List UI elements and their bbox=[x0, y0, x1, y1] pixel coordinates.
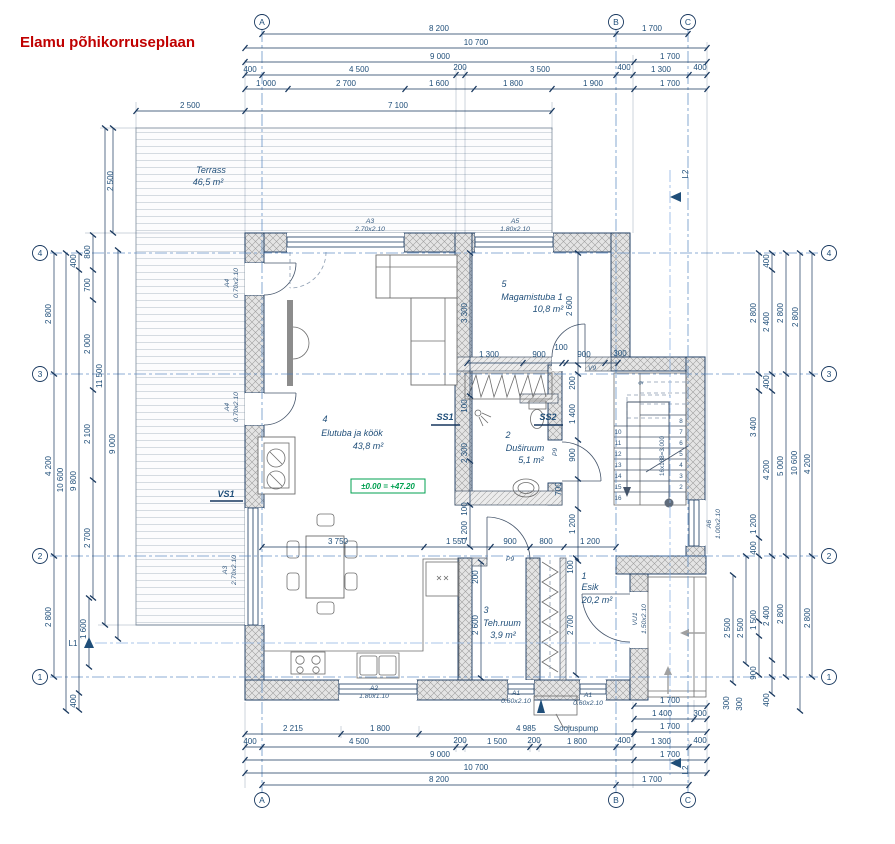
opening-label: 1.80x2.10 bbox=[500, 226, 530, 233]
dim-label: 800 bbox=[539, 537, 553, 546]
dim-label: 200 bbox=[527, 736, 541, 745]
stair-number: 13 bbox=[614, 462, 622, 469]
window-a3-left bbox=[245, 508, 264, 625]
dim-label: 400 bbox=[243, 737, 257, 746]
grid-label-2-left: 2 bbox=[38, 551, 43, 561]
level-mark-text: ±0.00 = +47.20 bbox=[361, 482, 415, 491]
dim-label: 1 500 bbox=[749, 609, 758, 630]
dim-label: 300 bbox=[735, 697, 744, 711]
opening-label: 2.70x2.10 bbox=[231, 555, 238, 586]
dim-label: 300 bbox=[613, 349, 627, 358]
heat-pump-label: Soojuspump bbox=[554, 724, 599, 733]
opening-label: A1 bbox=[511, 690, 521, 697]
dim-label: 800 bbox=[83, 245, 92, 259]
dim-label: 1 800 bbox=[503, 79, 524, 88]
stair-number: 10 bbox=[614, 429, 622, 436]
dim-label: 9 800 bbox=[69, 470, 78, 491]
dim-label: 2 500 bbox=[106, 170, 115, 191]
grid-label-b-bottom: B bbox=[613, 795, 619, 805]
section-mark-l2-bottom: L2 bbox=[681, 765, 690, 774]
dim-label: 1 800 bbox=[567, 737, 588, 746]
l2-top-marker-icon bbox=[670, 192, 681, 202]
dim-label: 1 900 bbox=[583, 79, 604, 88]
dim-label: 4 985 bbox=[516, 724, 537, 733]
dim-label: 400 bbox=[749, 541, 758, 555]
dim-label: 3 300 bbox=[460, 302, 469, 323]
grid-label-4-left: 4 bbox=[38, 248, 43, 258]
dim-label: 9 000 bbox=[430, 52, 451, 61]
room-label-esik: Esik bbox=[581, 582, 599, 592]
dim-label: 400 bbox=[243, 65, 257, 74]
dim-label: 4 200 bbox=[803, 453, 812, 474]
dim-label: 3 750 bbox=[328, 537, 349, 546]
opening-label: A5 bbox=[510, 218, 520, 225]
stair-formula: 16x188=3.000 bbox=[659, 435, 666, 476]
dim-label: 10 700 bbox=[464, 763, 489, 772]
dim-label: 1 200 bbox=[568, 513, 577, 534]
stair-number: 6 bbox=[679, 440, 683, 447]
dim-label: 10 700 bbox=[464, 38, 489, 47]
dim-label: 2 800 bbox=[776, 302, 785, 323]
dim-label: 400 bbox=[762, 254, 771, 268]
floorplan-drawing: Elamu põhikorruseplaan 8 200 1 700 10 70… bbox=[0, 0, 895, 844]
stair-number: 7 bbox=[679, 429, 683, 436]
stair-number: 14 bbox=[614, 473, 622, 480]
dim-label: 1 200 bbox=[580, 537, 601, 546]
dim-label: 400 bbox=[762, 375, 771, 389]
dim-label: 1 700 bbox=[642, 775, 663, 784]
dim-label: 300 bbox=[722, 696, 731, 710]
room-num-tehruum: 3 bbox=[483, 605, 488, 615]
dim-label: 1 300 bbox=[651, 737, 672, 746]
dim-label: 200 bbox=[453, 736, 467, 745]
stair-number: 16 bbox=[614, 495, 622, 502]
dim-label: 100 bbox=[460, 399, 469, 413]
opening-label: 0.60x2.10 bbox=[501, 698, 531, 705]
dim-label: 2 500 bbox=[180, 101, 201, 110]
dim-label: 400 bbox=[617, 736, 631, 745]
dim-label: 2 600 bbox=[471, 614, 480, 635]
opening-label: P9 bbox=[506, 556, 515, 563]
dim-label: 900 bbox=[749, 666, 758, 680]
opening-label: 2.70x2.10 bbox=[354, 226, 385, 233]
dim-label: 9 000 bbox=[430, 750, 451, 759]
section-mark-l1: L1 bbox=[69, 639, 78, 648]
opening-label: A3 bbox=[365, 218, 375, 225]
dim-label: 1 700 bbox=[660, 722, 681, 731]
dim-label: 11 500 bbox=[95, 364, 104, 388]
dim-label: 300 bbox=[693, 709, 707, 718]
section-mark-ss2: SS2 bbox=[539, 412, 556, 422]
grid-label-3-left: 3 bbox=[38, 369, 43, 379]
dim-label: 2 500 bbox=[736, 617, 745, 638]
stair-number: 5 bbox=[679, 451, 683, 458]
floorplan-canvas: Elamu põhikorruseplaan 8 200 1 700 10 70… bbox=[0, 0, 895, 844]
room-label-elutuba: Elutuba ja köök bbox=[321, 428, 383, 438]
room-area-elutuba: 43,8 m² bbox=[353, 441, 385, 451]
dim-label: 2 000 bbox=[83, 333, 92, 354]
dim-label: 2 800 bbox=[803, 607, 812, 628]
right-dimensions: 400 2 400 2 800 2 800 2 800 400 3 400 4 … bbox=[722, 254, 812, 711]
grid-label-3-right: 3 bbox=[827, 369, 832, 379]
dim-label: 3 400 bbox=[749, 416, 758, 437]
dim-label: 10 600 bbox=[790, 450, 799, 475]
dim-label: 400 bbox=[693, 736, 707, 745]
opening-label: 1.80x1.10 bbox=[359, 693, 389, 700]
opening-label: A3 bbox=[222, 566, 229, 576]
dim-label: 900 bbox=[532, 350, 546, 359]
dim-label: 1 700 bbox=[660, 52, 681, 61]
left-dimensions: 2 500 800 700 2 000 2 100 2 700 2 800 4 … bbox=[44, 170, 117, 707]
dim-label: 2 215 bbox=[283, 724, 304, 733]
dim-label: 2 800 bbox=[44, 303, 53, 324]
window-a6 bbox=[686, 500, 705, 546]
room-num-dusiruum: 2 bbox=[504, 430, 510, 440]
dim-label: 2 800 bbox=[44, 606, 53, 627]
dim-label: 400 bbox=[617, 63, 631, 72]
dim-label: 3 500 bbox=[530, 65, 551, 74]
page-title: Elamu põhikorruseplaan bbox=[20, 34, 195, 51]
room-area-magamistuba: 10,8 m² bbox=[533, 304, 565, 314]
room-num-elutuba: 4 bbox=[322, 414, 327, 424]
opening-label: A1 bbox=[583, 692, 593, 699]
opening-label: A6 bbox=[706, 520, 713, 530]
dim-label: 700 bbox=[554, 482, 563, 496]
section-mark-ss1: SS1 bbox=[436, 412, 453, 422]
dim-label: 1 700 bbox=[660, 79, 681, 88]
dim-label: 700 bbox=[83, 278, 92, 292]
section-mark-l2-top: L2 bbox=[681, 169, 690, 178]
dim-label: 100 bbox=[566, 560, 575, 574]
dim-label: 2 400 bbox=[762, 605, 771, 626]
dim-label: 7 100 bbox=[388, 101, 409, 110]
stair-number: 12 bbox=[614, 451, 622, 458]
dim-label: 9 000 bbox=[108, 433, 117, 454]
stair-number: 11 bbox=[615, 440, 622, 447]
grid-label-1-right: 1 bbox=[827, 672, 832, 682]
dim-label: 2 800 bbox=[749, 302, 758, 323]
stair-number: 4 bbox=[679, 462, 683, 469]
grid-label-a-top: A bbox=[259, 17, 265, 27]
section-mark-vs1: VS1 bbox=[217, 489, 234, 499]
dim-label: 200 bbox=[453, 63, 467, 72]
room-label-terrass: Terrass bbox=[196, 165, 226, 175]
dim-label: 8 200 bbox=[429, 24, 450, 33]
dim-label: 400 bbox=[693, 63, 707, 72]
window-a5 bbox=[475, 233, 553, 252]
grid-label-2-right: 2 bbox=[827, 551, 832, 561]
room-num-esik: 1 bbox=[581, 571, 586, 581]
dim-label: 2 100 bbox=[83, 423, 92, 444]
dim-label: 2 600 bbox=[565, 295, 574, 316]
dim-label: 1 200 bbox=[749, 513, 758, 534]
opening-label: 0.60x2.10 bbox=[573, 700, 603, 707]
dim-label: 1 600 bbox=[429, 79, 450, 88]
dim-label: 5 000 bbox=[776, 455, 785, 476]
dim-label: 1 400 bbox=[568, 403, 577, 424]
stair-number: 15 bbox=[614, 484, 622, 491]
dim-label: 4 500 bbox=[349, 737, 370, 746]
opening-label: A4 bbox=[224, 403, 231, 413]
top-dimensions: 8 200 1 700 10 700 9 000 1 700 400 4 500… bbox=[180, 24, 707, 110]
dim-label: 400 bbox=[69, 254, 78, 268]
dim-label: 1 300 bbox=[651, 65, 672, 74]
dim-label: 100 bbox=[460, 502, 469, 516]
stair-number: 8 bbox=[679, 418, 683, 425]
room-area-dusiruum: 5,1 m² bbox=[518, 455, 545, 465]
dim-label: 2 800 bbox=[776, 603, 785, 624]
dim-label: 400 bbox=[762, 693, 771, 707]
opening-label: A4 bbox=[224, 279, 231, 289]
dim-label: 100 bbox=[554, 343, 568, 352]
heat-pump bbox=[534, 696, 577, 727]
grid-label-1-left: 1 bbox=[38, 672, 43, 682]
grid-label-b-top: B bbox=[613, 17, 619, 27]
dim-label: 2 700 bbox=[336, 79, 357, 88]
opening-label: 0.70x2.10 bbox=[233, 392, 240, 422]
room-label-magamistuba: Magamistuba 1 bbox=[501, 292, 563, 302]
window-a3-top bbox=[287, 233, 404, 252]
stair-number: 9 bbox=[638, 381, 645, 385]
dim-label: 200 bbox=[568, 376, 577, 390]
dim-label: 1 800 bbox=[370, 724, 391, 733]
level-mark: ±0.00 = +47.20 bbox=[351, 479, 425, 493]
dim-label: 1 600 bbox=[79, 618, 88, 639]
dim-label: 1 700 bbox=[660, 696, 681, 705]
dim-label: 2 700 bbox=[566, 614, 575, 635]
dim-label: 1 550 bbox=[446, 537, 467, 546]
dim-label: 1 700 bbox=[642, 24, 663, 33]
dim-label: 4 200 bbox=[44, 455, 53, 476]
grid-label-4-right: 4 bbox=[827, 248, 832, 258]
dim-label: 900 bbox=[568, 448, 577, 462]
grid-label-c-top: C bbox=[685, 17, 691, 27]
fireplace bbox=[258, 437, 295, 494]
dim-label: 900 bbox=[503, 537, 517, 546]
dim-label: 1 400 bbox=[652, 709, 673, 718]
opening-label: VU1 bbox=[632, 612, 639, 625]
dim-label: 4 200 bbox=[762, 459, 771, 480]
dim-label: 2 500 bbox=[723, 617, 732, 638]
dim-label: 8 200 bbox=[429, 775, 450, 784]
room-area-tehruum: 3,9 m² bbox=[490, 630, 517, 640]
dim-label: 1 500 bbox=[487, 737, 508, 746]
dim-label: 1 000 bbox=[256, 79, 277, 88]
dim-label: 2 700 bbox=[83, 527, 92, 548]
room-area-terrass: 46,5 m² bbox=[193, 177, 225, 187]
opening-label: 1.50x2.10 bbox=[641, 604, 648, 634]
room-label-tehruum: Teh.ruum bbox=[483, 618, 521, 628]
l2-bottom-marker-icon bbox=[670, 758, 681, 768]
dim-label: 2 400 bbox=[762, 311, 771, 332]
dim-label: 2 800 bbox=[791, 306, 800, 327]
stair-number: 3 bbox=[679, 473, 683, 480]
bottom-dimensions: 2 215 1 800 4 985 400 4 500 200 1 500 20… bbox=[243, 696, 707, 784]
opening-label: 1.00x2.10 bbox=[715, 509, 722, 539]
opening-label: A2 bbox=[369, 685, 379, 692]
opening-label: V9 bbox=[588, 365, 597, 372]
stair-start-post bbox=[665, 499, 674, 508]
opening-label: P9 bbox=[552, 448, 559, 457]
stair-number: 2 bbox=[679, 484, 683, 491]
room-area-esik: 20,2 m² bbox=[581, 595, 614, 605]
dim-label: 200 bbox=[471, 570, 480, 584]
dim-label: 4 500 bbox=[349, 65, 370, 74]
dim-label: 400 bbox=[69, 694, 78, 708]
dim-label: 2 300 bbox=[460, 442, 469, 463]
dim-label: 900 bbox=[577, 350, 591, 359]
dim-label: 1 700 bbox=[660, 750, 681, 759]
grid-label-c-bottom: C bbox=[685, 795, 691, 805]
dim-label: 10 600 bbox=[56, 467, 65, 492]
room-label-dusiruum: Duširuum bbox=[506, 443, 545, 453]
grid-label-a-bottom: A bbox=[259, 795, 265, 805]
opening-label: 0.70x2.10 bbox=[233, 268, 240, 298]
dim-label: 1 300 bbox=[479, 350, 500, 359]
